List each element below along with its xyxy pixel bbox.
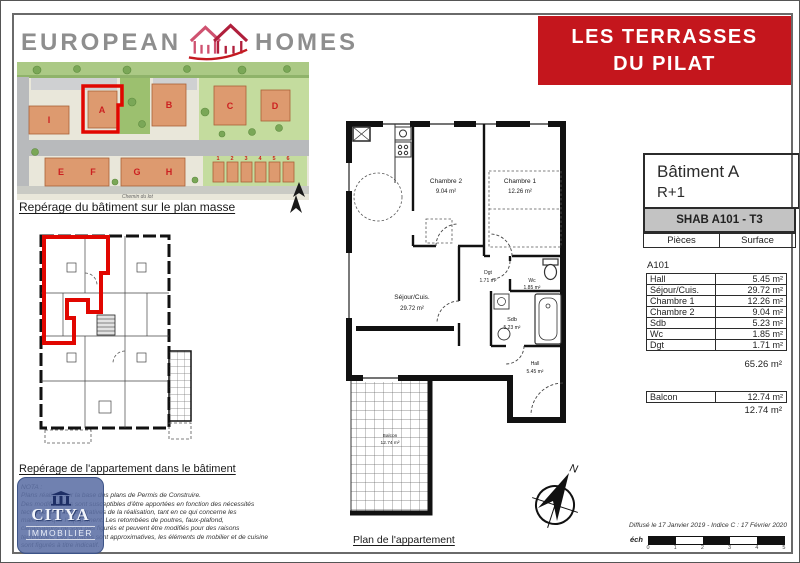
table-row: Séjour/Cuis.29.72 m² (647, 285, 787, 296)
apartment-plan-caption: Plan de l'appartement (353, 534, 455, 546)
north-arrow-icon (289, 195, 303, 215)
column-pieces: Pièces (643, 233, 719, 248)
balcony-area (351, 380, 430, 512)
room-area: 1.85 m² (524, 285, 541, 291)
table-row: Hall5.45 m² (647, 274, 787, 285)
citya-immobilier-logo: CITYA IMMOBILIER (17, 477, 104, 554)
scale-tick: 2 (698, 545, 706, 551)
compass-rose-icon: N (523, 459, 587, 535)
site-plan-caption: Repérage du bâtiment sur le plan masse (19, 200, 235, 214)
scale-bar (648, 536, 785, 545)
surface-cell: 9.04 m² (716, 307, 787, 318)
surface-cell: 5.23 m² (716, 318, 787, 329)
svg-text:N: N (568, 462, 579, 476)
diffusion-note: Diffusé le 17 Janvier 2019 - Indice C : … (629, 522, 787, 529)
scale-label: éch (630, 535, 643, 544)
svg-text:I: I (48, 115, 51, 125)
surface-table: Hall5.45 m² Séjour/Cuis.29.72 m² Chambre… (646, 273, 787, 351)
site-plan-map: I A B C D E F G H 1 2 3 4 5 6 Chemin du … (17, 62, 309, 200)
building-plan-caption: Repérage de l'appartement dans le bâtime… (19, 463, 236, 475)
room-area: 12.74 m² (381, 440, 400, 446)
column-surface: Surface (719, 233, 796, 248)
svg-text:6: 6 (286, 156, 289, 162)
piece-cell: Hall (647, 274, 716, 285)
building-title-box: Bâtiment A R+1 (643, 153, 800, 209)
room-label: Chambre 1 (504, 178, 537, 185)
room-area: 9.04 m² (436, 189, 456, 195)
balcony-total: 12.74 m² (646, 405, 782, 416)
logo-house-icon (187, 19, 249, 66)
svg-text:F: F (90, 167, 96, 177)
room-label: Wc (528, 278, 536, 284)
room-label: Sdb (507, 317, 517, 323)
building-floor: R+1 (657, 184, 798, 201)
table-row: Sdb5.23 m² (647, 318, 787, 329)
total-surface: 65.26 m² (646, 359, 782, 370)
table-row: Chambre 29.04 m² (647, 307, 787, 318)
logo-word-homes: HOMES (255, 29, 358, 57)
svg-text:2: 2 (230, 156, 233, 162)
unit-label: A101 (647, 260, 669, 271)
scale-tick: 3 (726, 545, 734, 551)
room-area: 5.45 m² (527, 369, 544, 375)
citya-subtitle: IMMOBILIER (26, 526, 95, 540)
svg-text:E: E (58, 167, 64, 177)
surface-cell: 5.45 m² (716, 274, 787, 285)
room-label: Balcon (383, 433, 398, 439)
room-label: Chambre 2 (430, 178, 463, 185)
svg-text:3: 3 (244, 156, 247, 162)
svg-text:A: A (99, 105, 106, 115)
room-label: Dgt (484, 270, 492, 276)
surface-cell: 1.85 m² (716, 329, 787, 340)
european-homes-logo: EUROPEAN HOMES (21, 19, 358, 66)
piece-cell: Wc (647, 329, 716, 340)
svg-text:H: H (166, 167, 173, 177)
plan-sheet-page: EUROPEAN HOMES LES TERRASSES DU PILAT (0, 0, 800, 563)
svg-text:G: G (133, 167, 140, 177)
room-area: 5.23 m² (504, 325, 521, 331)
unit-band: SHAB A101 - T3 (643, 207, 796, 233)
piece-cell: Séjour/Cuis. (647, 285, 716, 296)
surface-cell: 1.71 m² (716, 340, 787, 351)
svg-text:D: D (272, 101, 279, 111)
surface-cell: 12.26 m² (716, 296, 787, 307)
room-label: Hall (531, 361, 540, 367)
balcony-table: Balcon12.74 m² (646, 391, 787, 403)
building-floor-plan (37, 233, 197, 448)
piece-cell: Chambre 1 (647, 296, 716, 307)
svg-text:1: 1 (216, 156, 219, 162)
scale-tick: 0 (644, 545, 652, 551)
piece-cell: Balcon (647, 392, 716, 403)
scale-tick: 1 (671, 545, 679, 551)
scale-tick: 5 (780, 545, 788, 551)
building-title: Bâtiment A (657, 162, 798, 182)
room-label: Séjour/Cuis. (394, 294, 430, 301)
svg-text:B: B (166, 100, 173, 110)
table-column-headers: Pièces Surface (643, 233, 796, 248)
table-row: Balcon12.74 m² (647, 392, 787, 403)
svg-text:5: 5 (272, 156, 275, 162)
citya-name: CITYA (31, 506, 89, 523)
banner-line1: LES TERRASSES (571, 24, 757, 51)
scale-ticks: 0 1 2 3 4 5 (644, 545, 788, 551)
banner-line2: DU PILAT (613, 51, 716, 78)
citya-column-icon (49, 491, 73, 506)
piece-cell: Chambre 2 (647, 307, 716, 318)
piece-cell: Dgt (647, 340, 716, 351)
project-title-banner: LES TERRASSES DU PILAT (538, 16, 791, 85)
logo-word-european: EUROPEAN (21, 29, 181, 57)
surface-cell: 12.74 m² (716, 392, 787, 403)
svg-text:C: C (227, 101, 234, 111)
table-row: Dgt1.71 m² (647, 340, 787, 351)
surface-cell: 29.72 m² (716, 285, 787, 296)
piece-cell: Sdb (647, 318, 716, 329)
room-area: 12.26 m² (508, 189, 532, 195)
table-row: Chambre 112.26 m² (647, 296, 787, 307)
table-row: Wc1.85 m² (647, 329, 787, 340)
room-area: 1.71 m² (480, 278, 497, 284)
scale-tick: 4 (753, 545, 761, 551)
room-area: 29.72 m² (400, 306, 424, 312)
